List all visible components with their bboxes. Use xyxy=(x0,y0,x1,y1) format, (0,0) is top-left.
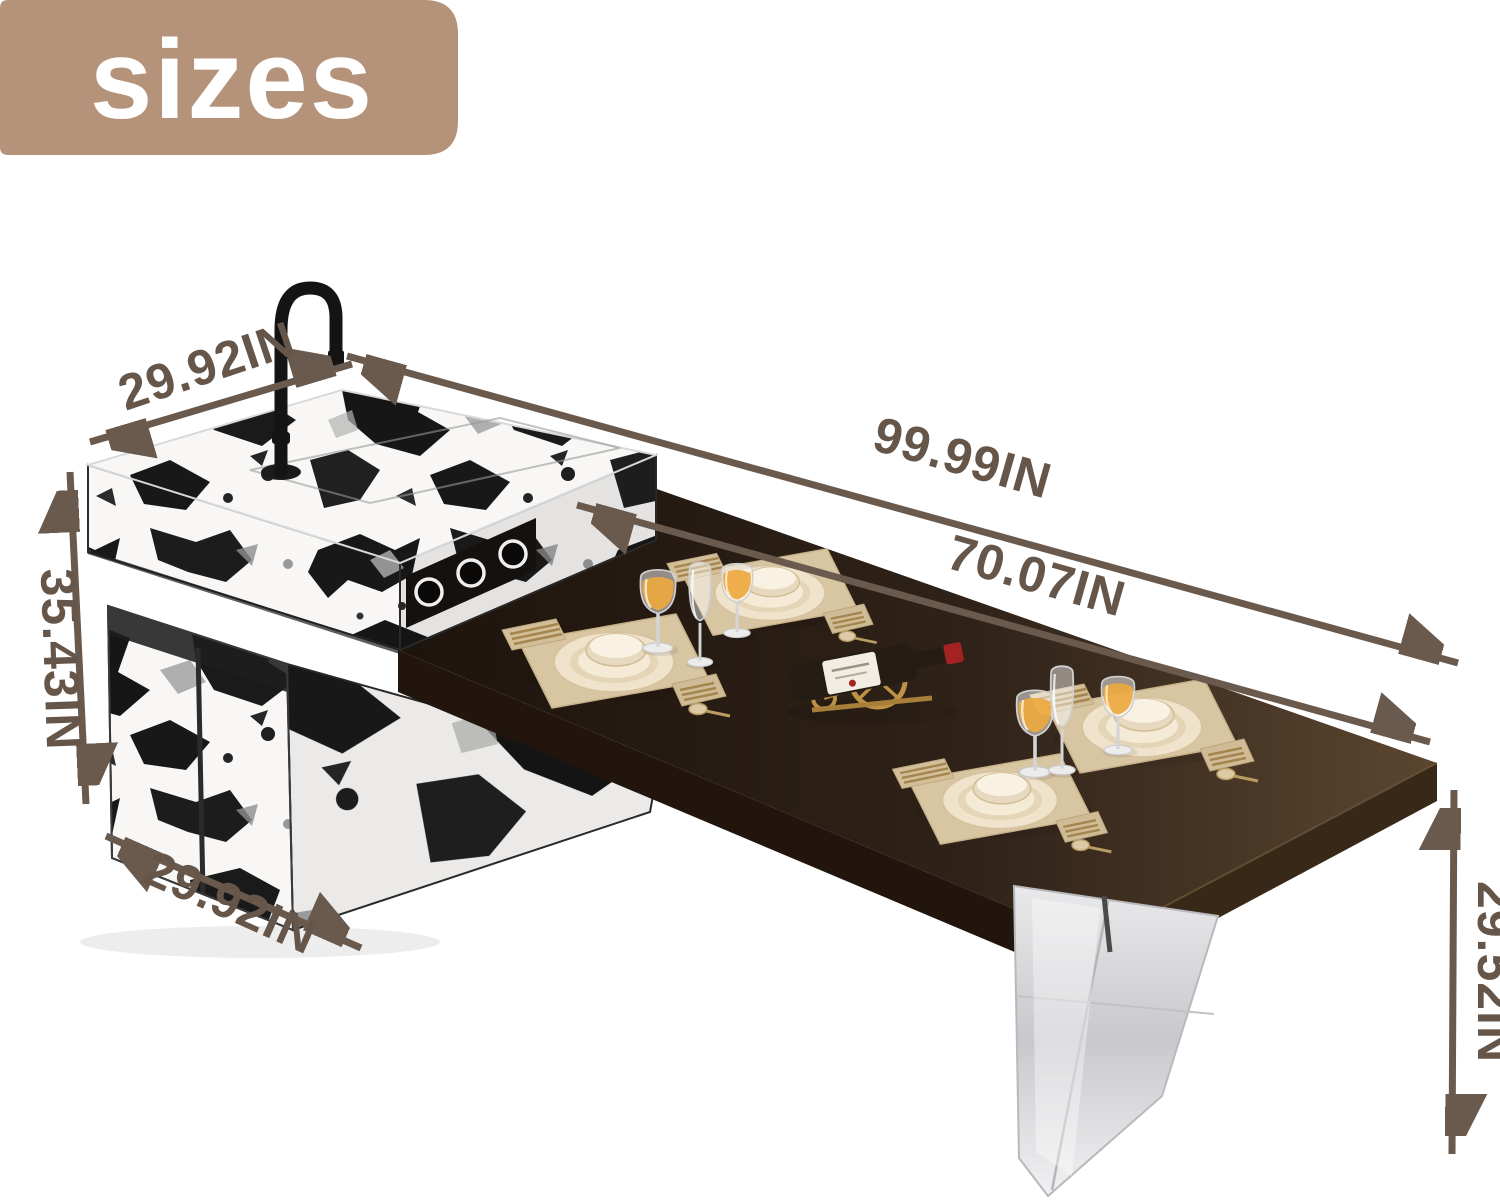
product-size-diagram: sizes 29.92IN 99.99IN 70.07IN 35.43IN 29… xyxy=(0,0,1500,1202)
control-knob xyxy=(500,541,526,567)
control-knob xyxy=(458,560,484,586)
dimension-label-table-height: 29.52IN xyxy=(1467,881,1500,1063)
size-diagram-canvas: sizes 29.92IN 99.99IN 70.07IN 35.43IN 29… xyxy=(0,0,1500,1202)
control-knob xyxy=(416,579,442,605)
dimension-label-island-height: 35.43IN xyxy=(30,567,92,751)
sizes-badge: sizes xyxy=(0,0,458,155)
faucet-collar xyxy=(272,432,290,444)
badge-label: sizes xyxy=(90,17,374,142)
dimension-arrow-table-height xyxy=(1452,790,1454,1154)
bottle-cap xyxy=(943,642,964,665)
